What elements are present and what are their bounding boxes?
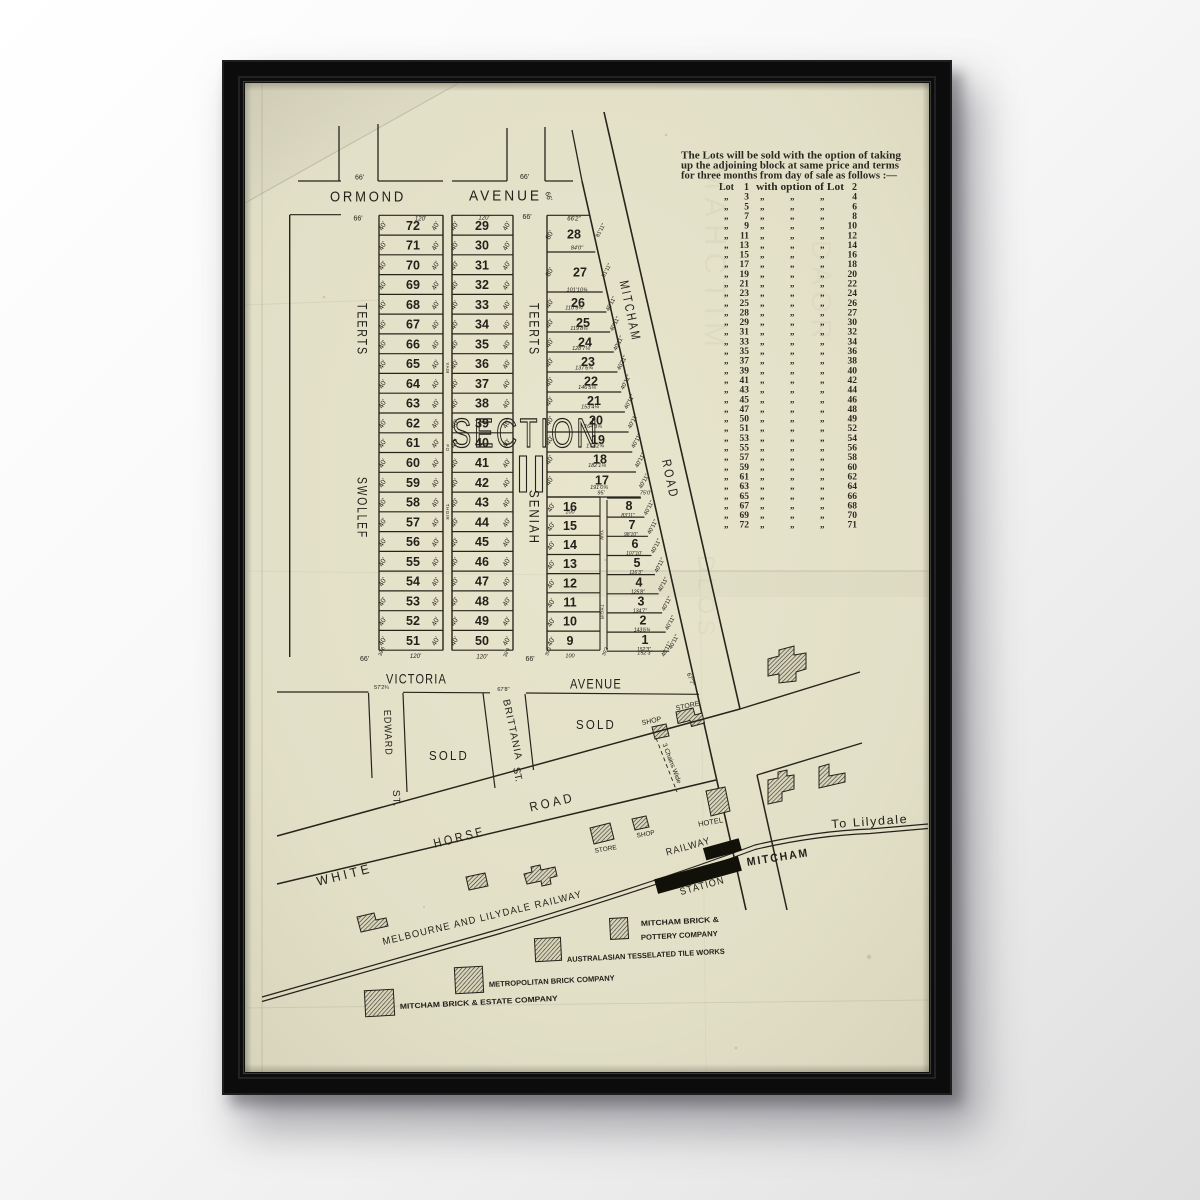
svg-text:„: „ bbox=[760, 404, 765, 414]
svg-text:„: „ bbox=[760, 336, 765, 346]
svg-text:„: „ bbox=[724, 433, 729, 443]
svg-text:MAHCTIM: MAHCTIM bbox=[698, 165, 731, 354]
svg-text:„: „ bbox=[760, 394, 765, 404]
svg-text:„: „ bbox=[724, 472, 729, 482]
svg-text:„: „ bbox=[790, 336, 795, 346]
svg-text:„: „ bbox=[790, 365, 795, 375]
svg-text:„: „ bbox=[724, 375, 729, 385]
svg-text:35: 35 bbox=[475, 337, 489, 351]
svg-text:„: „ bbox=[760, 500, 765, 510]
svg-text:„: „ bbox=[760, 230, 765, 240]
svg-text:2: 2 bbox=[852, 182, 857, 193]
svg-text:20: 20 bbox=[848, 270, 858, 280]
svg-text:„: „ bbox=[820, 414, 825, 424]
svg-text:„: „ bbox=[790, 192, 795, 202]
svg-text:55: 55 bbox=[740, 444, 750, 454]
svg-text:„: „ bbox=[820, 346, 825, 356]
svg-text:2: 2 bbox=[640, 614, 647, 628]
svg-text:„: „ bbox=[790, 375, 795, 385]
svg-text:SOLD: SOLD bbox=[576, 717, 616, 732]
svg-text:„: „ bbox=[790, 201, 795, 211]
svg-text:66': 66' bbox=[360, 656, 369, 663]
svg-text:„: „ bbox=[724, 452, 729, 462]
svg-text:37: 37 bbox=[740, 357, 750, 367]
svg-text:47: 47 bbox=[475, 575, 489, 589]
svg-text:66': 66' bbox=[525, 656, 534, 663]
svg-text:5: 5 bbox=[634, 556, 641, 570]
svg-text:„: „ bbox=[820, 201, 825, 211]
svg-text:59: 59 bbox=[406, 476, 420, 490]
svg-text:„: „ bbox=[760, 201, 765, 211]
svg-text:14: 14 bbox=[563, 538, 577, 552]
svg-text:„: „ bbox=[790, 520, 795, 530]
svg-text:27: 27 bbox=[848, 308, 858, 318]
svg-text:„: „ bbox=[724, 443, 729, 453]
svg-text:„: „ bbox=[790, 481, 795, 491]
svg-text:„: „ bbox=[760, 240, 765, 250]
svg-text:„: „ bbox=[790, 288, 795, 298]
svg-text:15: 15 bbox=[740, 251, 750, 261]
svg-text:„: „ bbox=[820, 404, 825, 414]
svg-text:22: 22 bbox=[848, 280, 858, 290]
svg-text:182'1¼: 182'1¼ bbox=[588, 463, 606, 469]
svg-text:52: 52 bbox=[848, 424, 858, 434]
svg-text:AVENUE: AVENUE bbox=[469, 188, 542, 205]
svg-text:DLOS: DLOS bbox=[692, 555, 719, 640]
svg-text:THGIR: THGIR bbox=[600, 604, 605, 619]
svg-text:15: 15 bbox=[563, 519, 577, 533]
svg-text:55: 55 bbox=[406, 555, 420, 569]
svg-text:„: „ bbox=[760, 211, 765, 221]
svg-text:„: „ bbox=[760, 279, 765, 289]
svg-text:152'3'': 152'3'' bbox=[637, 651, 653, 657]
svg-text:137'6¾: 137'6¾ bbox=[575, 366, 593, 372]
svg-text:29: 29 bbox=[740, 318, 750, 328]
svg-text:7: 7 bbox=[744, 212, 749, 222]
svg-text:„: „ bbox=[790, 221, 795, 231]
svg-text:„: „ bbox=[820, 491, 825, 501]
svg-text:66'2'': 66'2'' bbox=[567, 217, 581, 223]
svg-text:„: „ bbox=[760, 443, 765, 453]
svg-text:34: 34 bbox=[475, 318, 489, 332]
svg-text:„: „ bbox=[820, 356, 825, 366]
svg-text:„: „ bbox=[760, 298, 765, 308]
svg-text:ORMOND: ORMOND bbox=[330, 189, 406, 206]
svg-text:„: „ bbox=[820, 520, 825, 530]
svg-text:AVENUE: AVENUE bbox=[570, 676, 622, 692]
svg-text:69: 69 bbox=[740, 511, 750, 521]
svg-text:„: „ bbox=[820, 433, 825, 443]
svg-text:68: 68 bbox=[848, 501, 858, 511]
svg-text:„: „ bbox=[760, 491, 765, 501]
svg-text:46: 46 bbox=[475, 555, 489, 569]
svg-text:33: 33 bbox=[740, 337, 750, 347]
svg-text:53: 53 bbox=[406, 594, 420, 608]
svg-text:„: „ bbox=[820, 443, 825, 453]
svg-text:1: 1 bbox=[744, 182, 749, 193]
svg-text:„: „ bbox=[790, 433, 795, 443]
svg-text:30: 30 bbox=[848, 318, 858, 328]
svg-text:42: 42 bbox=[475, 476, 489, 490]
svg-text:„: „ bbox=[724, 500, 729, 510]
svg-text:„: „ bbox=[820, 510, 825, 520]
svg-text:„: „ bbox=[790, 491, 795, 501]
svg-text:„: „ bbox=[724, 481, 729, 491]
svg-text:„: „ bbox=[790, 211, 795, 221]
svg-text:„: „ bbox=[760, 433, 765, 443]
svg-text:31: 31 bbox=[740, 328, 750, 338]
svg-text:„: „ bbox=[760, 481, 765, 491]
svg-text:12: 12 bbox=[563, 576, 577, 590]
svg-text:„: „ bbox=[760, 365, 765, 375]
svg-text:„: „ bbox=[790, 472, 795, 482]
svg-text:100: 100 bbox=[565, 654, 575, 660]
svg-text:41: 41 bbox=[740, 376, 750, 386]
svg-text:„: „ bbox=[790, 356, 795, 366]
svg-text:10: 10 bbox=[563, 615, 577, 629]
svg-text:„: „ bbox=[820, 365, 825, 375]
svg-text:16: 16 bbox=[848, 251, 858, 261]
svg-text:„: „ bbox=[760, 269, 765, 279]
svg-text:119'8¾: 119'8¾ bbox=[570, 326, 588, 332]
svg-text:33: 33 bbox=[475, 298, 489, 312]
svg-text:37: 37 bbox=[475, 377, 489, 391]
svg-text:25: 25 bbox=[740, 299, 750, 309]
svg-text:„: „ bbox=[820, 394, 825, 404]
svg-text:46: 46 bbox=[848, 395, 858, 405]
svg-text:110'9¾: 110'9¾ bbox=[565, 306, 583, 312]
svg-text:49: 49 bbox=[475, 614, 489, 628]
svg-text:8: 8 bbox=[852, 212, 857, 222]
svg-text:24: 24 bbox=[848, 289, 858, 299]
svg-text:„: „ bbox=[790, 452, 795, 462]
svg-text:11: 11 bbox=[563, 596, 576, 610]
svg-text:120': 120' bbox=[415, 217, 427, 223]
svg-text:„: „ bbox=[760, 259, 765, 269]
svg-text:35: 35 bbox=[740, 347, 750, 357]
svg-text:„: „ bbox=[790, 510, 795, 520]
svg-text:42: 42 bbox=[848, 376, 858, 386]
svg-text:VICTORIA: VICTORIA bbox=[386, 671, 447, 687]
svg-text:„: „ bbox=[724, 414, 729, 424]
svg-text:60: 60 bbox=[406, 456, 420, 470]
svg-text:3: 3 bbox=[744, 193, 749, 203]
svg-text:„: „ bbox=[724, 520, 729, 530]
svg-text:64: 64 bbox=[848, 482, 858, 492]
svg-text:„: „ bbox=[790, 500, 795, 510]
svg-text:32: 32 bbox=[848, 328, 858, 338]
svg-text:50: 50 bbox=[475, 634, 489, 648]
svg-text:51: 51 bbox=[406, 634, 420, 648]
svg-text:120': 120' bbox=[476, 655, 488, 661]
svg-text:66: 66 bbox=[848, 492, 858, 502]
svg-text:43: 43 bbox=[740, 386, 750, 396]
svg-text:63: 63 bbox=[406, 397, 420, 411]
svg-text:128'7¼: 128'7¼ bbox=[572, 346, 590, 352]
svg-text:„: „ bbox=[760, 472, 765, 482]
svg-text:„: „ bbox=[724, 462, 729, 472]
svg-text:„: „ bbox=[790, 414, 795, 424]
svg-text:50: 50 bbox=[740, 415, 750, 425]
svg-text:„: „ bbox=[790, 385, 795, 395]
svg-text:„: „ bbox=[820, 481, 825, 491]
svg-text:44: 44 bbox=[848, 386, 858, 396]
svg-text:32: 32 bbox=[475, 278, 489, 292]
svg-text:146'5¼: 146'5¼ bbox=[578, 385, 596, 391]
svg-text:with option of Lot: with option of Lot bbox=[756, 182, 845, 193]
svg-text:„: „ bbox=[760, 385, 765, 395]
svg-text:51: 51 bbox=[740, 424, 750, 434]
svg-text:68: 68 bbox=[406, 298, 420, 312]
svg-text:36: 36 bbox=[848, 347, 858, 357]
svg-text:57: 57 bbox=[406, 515, 420, 529]
svg-text:19: 19 bbox=[740, 270, 750, 280]
svg-text:65: 65 bbox=[406, 357, 420, 371]
svg-text:„: „ bbox=[724, 365, 729, 375]
svg-text:57: 57 bbox=[740, 453, 750, 463]
svg-text:40: 40 bbox=[848, 366, 858, 376]
svg-text:„: „ bbox=[760, 192, 765, 202]
svg-text:„: „ bbox=[760, 327, 765, 337]
svg-text:48: 48 bbox=[848, 405, 858, 415]
svg-text:9: 9 bbox=[567, 634, 574, 648]
svg-text:YAW: YAW bbox=[600, 530, 605, 540]
svg-text:70: 70 bbox=[406, 258, 420, 272]
svg-text:59: 59 bbox=[740, 463, 750, 473]
svg-text:28: 28 bbox=[567, 228, 581, 242]
svg-text:„: „ bbox=[790, 404, 795, 414]
svg-text:„: „ bbox=[790, 462, 795, 472]
svg-text:64: 64 bbox=[406, 377, 420, 391]
svg-text:17: 17 bbox=[740, 260, 750, 270]
svg-text:62: 62 bbox=[406, 417, 420, 431]
svg-text:5: 5 bbox=[744, 202, 749, 212]
svg-text:4: 4 bbox=[636, 575, 643, 589]
svg-text:„: „ bbox=[790, 307, 795, 317]
svg-text:39: 39 bbox=[740, 366, 750, 376]
svg-text:„: „ bbox=[820, 211, 825, 221]
svg-text:56: 56 bbox=[406, 535, 420, 549]
svg-text:„: „ bbox=[790, 394, 795, 404]
svg-text:„: „ bbox=[760, 317, 765, 327]
svg-text:„: „ bbox=[724, 385, 729, 395]
svg-text:66': 66' bbox=[522, 214, 531, 221]
svg-text:„: „ bbox=[820, 500, 825, 510]
svg-text:49: 49 bbox=[848, 415, 858, 425]
svg-text:58: 58 bbox=[406, 496, 420, 510]
svg-text:63: 63 bbox=[740, 482, 750, 492]
svg-text:120': 120' bbox=[410, 654, 422, 660]
svg-text:120': 120' bbox=[478, 216, 490, 222]
svg-text:„: „ bbox=[820, 423, 825, 433]
svg-text:TEERTS: TEERTS bbox=[527, 303, 543, 356]
svg-text:45: 45 bbox=[475, 535, 489, 549]
svg-text:„: „ bbox=[790, 279, 795, 289]
svg-text:65: 65 bbox=[740, 492, 750, 502]
svg-text:38: 38 bbox=[848, 357, 858, 367]
svg-text:66': 66' bbox=[520, 174, 529, 181]
svg-text:„: „ bbox=[760, 346, 765, 356]
svg-text:62: 62 bbox=[848, 473, 858, 483]
svg-text:67'8'': 67'8'' bbox=[497, 687, 509, 693]
svg-text:„: „ bbox=[760, 288, 765, 298]
svg-text:DAOR: DAOR bbox=[806, 240, 837, 345]
svg-text:6: 6 bbox=[852, 202, 857, 212]
svg-text:„: „ bbox=[724, 404, 729, 414]
svg-text:„: „ bbox=[724, 394, 729, 404]
svg-text:„: „ bbox=[760, 423, 765, 433]
svg-text:EDWARD: EDWARD bbox=[381, 710, 394, 756]
svg-text:TEERTS: TEERTS bbox=[355, 303, 371, 356]
svg-text:„: „ bbox=[790, 423, 795, 433]
svg-text:45: 45 bbox=[740, 395, 750, 405]
svg-text:4: 4 bbox=[852, 193, 857, 203]
svg-text:THGIR: THGIR bbox=[445, 504, 450, 521]
svg-text:„: „ bbox=[820, 385, 825, 395]
svg-text:30: 30 bbox=[475, 239, 489, 253]
svg-text:57'2¾: 57'2¾ bbox=[374, 685, 389, 691]
svg-text:YAW: YAW bbox=[445, 362, 450, 374]
svg-text:„: „ bbox=[760, 520, 765, 530]
svg-text:„: „ bbox=[790, 298, 795, 308]
svg-text:„: „ bbox=[790, 259, 795, 269]
svg-text:„: „ bbox=[724, 491, 729, 501]
svg-text:3: 3 bbox=[638, 595, 645, 609]
svg-text:SWOLLEF: SWOLLEF bbox=[355, 477, 371, 539]
svg-text:13: 13 bbox=[740, 241, 750, 251]
svg-text:„: „ bbox=[790, 317, 795, 327]
svg-text:„: „ bbox=[790, 269, 795, 279]
svg-text:„: „ bbox=[760, 375, 765, 385]
svg-text:SOLD: SOLD bbox=[429, 748, 469, 763]
svg-text:„: „ bbox=[760, 307, 765, 317]
svg-text:13: 13 bbox=[563, 557, 577, 571]
svg-text:44: 44 bbox=[475, 515, 489, 529]
svg-text:26: 26 bbox=[848, 299, 858, 309]
svg-text:36: 36 bbox=[475, 357, 489, 371]
svg-text:28: 28 bbox=[740, 308, 750, 318]
svg-text:„: „ bbox=[760, 414, 765, 424]
svg-text:„: „ bbox=[790, 250, 795, 260]
svg-text:„: „ bbox=[760, 250, 765, 260]
svg-text:„: „ bbox=[790, 230, 795, 240]
svg-text:67: 67 bbox=[406, 318, 420, 332]
svg-text:72: 72 bbox=[740, 521, 750, 531]
svg-text:67: 67 bbox=[740, 501, 750, 511]
svg-text:52: 52 bbox=[406, 614, 420, 628]
svg-text:„: „ bbox=[790, 327, 795, 337]
svg-text:71: 71 bbox=[406, 239, 420, 253]
svg-text:„: „ bbox=[790, 346, 795, 356]
svg-text:34: 34 bbox=[848, 337, 858, 347]
svg-text:71: 71 bbox=[848, 521, 858, 531]
svg-text:9: 9 bbox=[744, 222, 749, 232]
svg-text:„: „ bbox=[760, 510, 765, 520]
svg-text:75'0'': 75'0'' bbox=[640, 491, 653, 497]
svg-text:„: „ bbox=[790, 240, 795, 250]
svg-text:23: 23 bbox=[740, 289, 750, 299]
svg-text:21: 21 bbox=[740, 280, 750, 290]
svg-text:„: „ bbox=[820, 221, 825, 231]
svg-text:100: 100 bbox=[565, 510, 575, 516]
svg-text:31: 31 bbox=[475, 258, 489, 272]
svg-text:6: 6 bbox=[632, 537, 639, 551]
svg-text:„: „ bbox=[724, 356, 729, 366]
svg-text:„: „ bbox=[724, 510, 729, 520]
svg-text:„: „ bbox=[790, 443, 795, 453]
svg-text:„: „ bbox=[760, 356, 765, 366]
svg-text:10: 10 bbox=[848, 222, 858, 232]
svg-text:95': 95' bbox=[597, 491, 605, 497]
svg-text:54: 54 bbox=[406, 575, 420, 589]
svg-text:38: 38 bbox=[475, 397, 489, 411]
svg-text:47: 47 bbox=[740, 405, 750, 415]
svg-text:„: „ bbox=[760, 221, 765, 231]
svg-text:66: 66 bbox=[406, 337, 420, 351]
svg-text:18: 18 bbox=[848, 260, 858, 270]
svg-text:61: 61 bbox=[406, 436, 420, 450]
svg-text:„: „ bbox=[820, 375, 825, 385]
svg-text:60: 60 bbox=[848, 463, 858, 473]
svg-text:70: 70 bbox=[848, 511, 858, 521]
svg-text:53: 53 bbox=[740, 434, 750, 444]
svg-text:43: 43 bbox=[475, 496, 489, 510]
svg-text:1: 1 bbox=[642, 633, 649, 647]
svg-text:„: „ bbox=[760, 452, 765, 462]
svg-text:„: „ bbox=[724, 423, 729, 433]
svg-text:SENIAH: SENIAH bbox=[527, 490, 543, 545]
svg-text:48: 48 bbox=[475, 594, 489, 608]
svg-text:8: 8 bbox=[626, 499, 633, 513]
svg-text:61: 61 bbox=[740, 473, 750, 483]
svg-text:56: 56 bbox=[848, 444, 858, 454]
svg-text:41: 41 bbox=[475, 456, 489, 470]
svg-text:SECTION: SECTION bbox=[452, 410, 600, 456]
svg-text:„: „ bbox=[820, 452, 825, 462]
svg-text:„: „ bbox=[820, 230, 825, 240]
svg-text:84'0'': 84'0'' bbox=[571, 246, 584, 252]
svg-text:„: „ bbox=[820, 472, 825, 482]
svg-text:69: 69 bbox=[406, 278, 420, 292]
svg-text:101'10¾: 101'10¾ bbox=[567, 288, 588, 294]
svg-text:„: „ bbox=[820, 192, 825, 202]
svg-text:11: 11 bbox=[740, 231, 749, 241]
svg-text:„: „ bbox=[760, 462, 765, 472]
svg-text:54: 54 bbox=[848, 434, 858, 444]
svg-text:„: „ bbox=[820, 462, 825, 472]
svg-text:7: 7 bbox=[629, 518, 636, 532]
svg-text:66': 66' bbox=[353, 216, 362, 223]
svg-text:66': 66' bbox=[355, 175, 364, 182]
svg-text:14: 14 bbox=[848, 241, 858, 251]
svg-text:58: 58 bbox=[848, 453, 858, 463]
svg-text:27: 27 bbox=[573, 266, 587, 280]
